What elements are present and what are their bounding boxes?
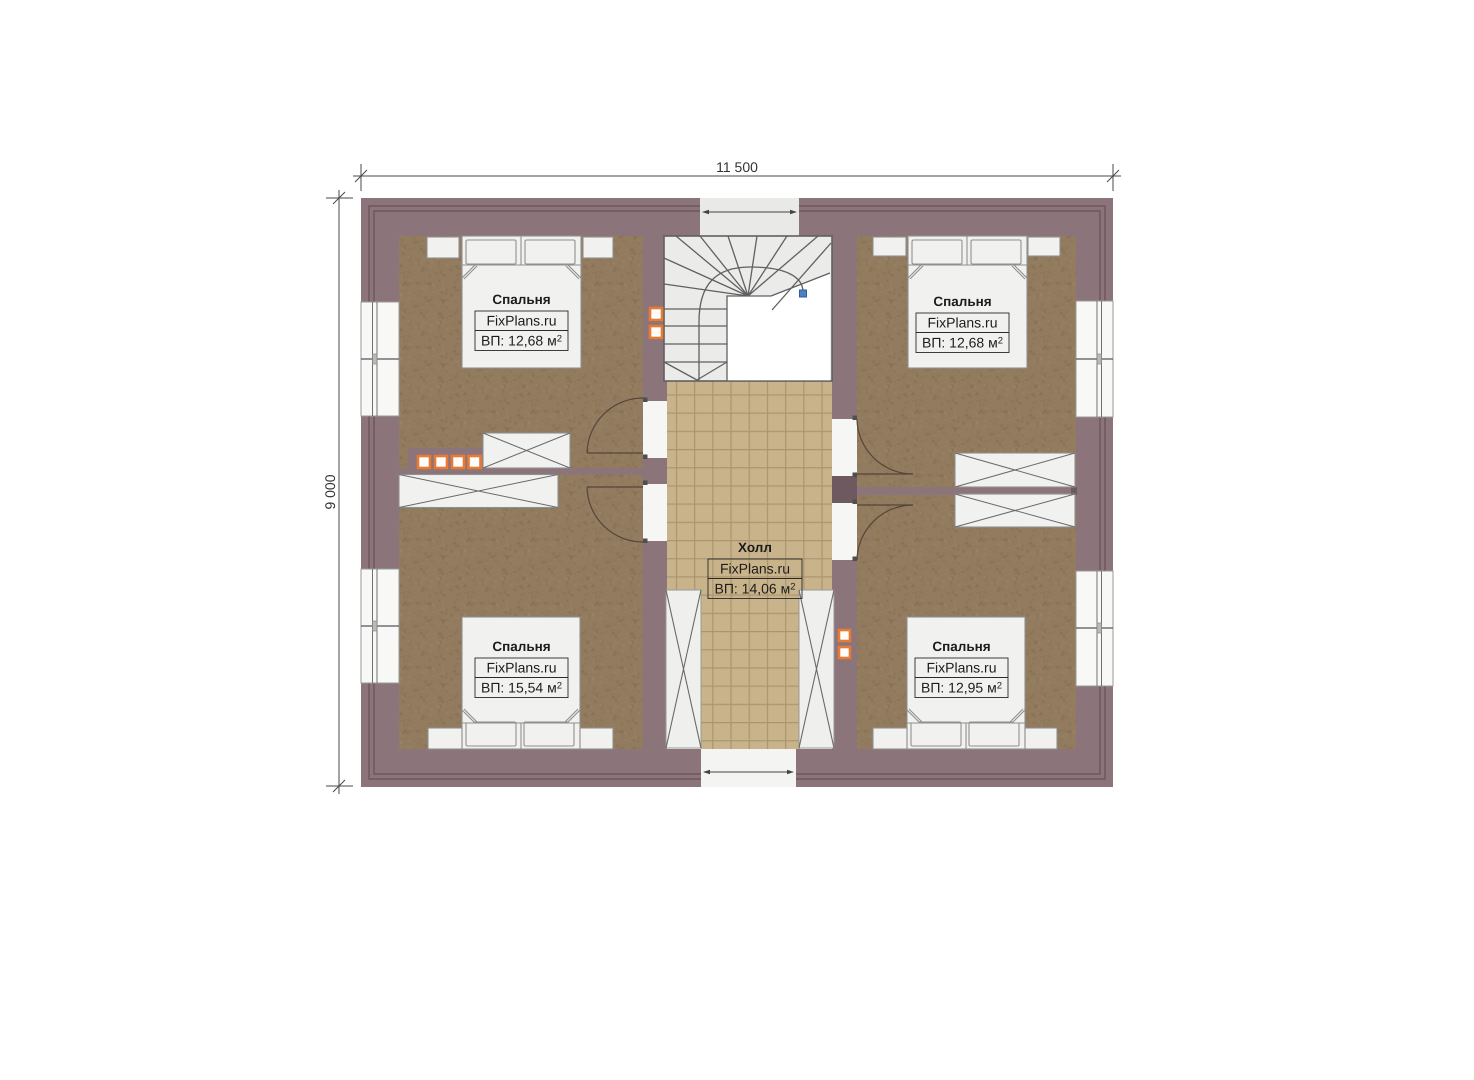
svg-text:ВП: 14,06 м2: ВП: 14,06 м2 xyxy=(714,581,795,597)
svg-text:ВП: 12,68 м2: ВП: 12,68 м2 xyxy=(922,335,1003,351)
svg-text:FixPlans.ru: FixPlans.ru xyxy=(486,660,556,676)
svg-text:Спальня: Спальня xyxy=(492,292,550,307)
svg-text:ВП: 12,68 м2: ВП: 12,68 м2 xyxy=(481,333,562,349)
svg-text:ВП: 15,54 м2: ВП: 15,54 м2 xyxy=(481,680,562,696)
svg-text:ВП: 12,95 м2: ВП: 12,95 м2 xyxy=(921,680,1002,696)
svg-text:Спальня: Спальня xyxy=(492,639,550,654)
svg-text:11 500: 11 500 xyxy=(716,159,758,175)
svg-text:9 000: 9 000 xyxy=(322,474,338,509)
svg-text:FixPlans.ru: FixPlans.ru xyxy=(926,660,996,676)
svg-text:FixPlans.ru: FixPlans.ru xyxy=(486,313,556,329)
svg-text:Спальня: Спальня xyxy=(933,294,991,309)
svg-text:Холл: Холл xyxy=(738,540,772,555)
svg-text:FixPlans.ru: FixPlans.ru xyxy=(927,315,997,331)
svg-text:Спальня: Спальня xyxy=(932,639,990,654)
svg-text:FixPlans.ru: FixPlans.ru xyxy=(720,561,790,577)
